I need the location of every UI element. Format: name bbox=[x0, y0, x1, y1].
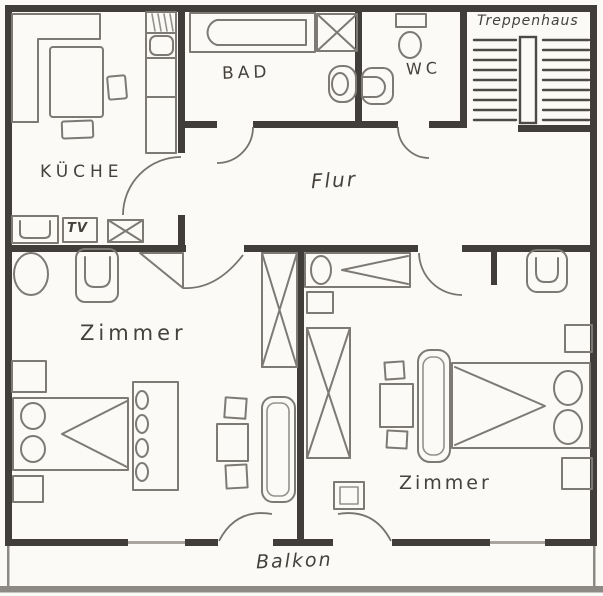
wall-shelf bbox=[565, 325, 592, 352]
washbasin-bathroom bbox=[329, 66, 356, 102]
stairwell-stairs bbox=[474, 37, 589, 123]
knob bbox=[136, 415, 148, 433]
corner-bench bbox=[12, 14, 100, 122]
balcony-door-left-arc bbox=[219, 513, 272, 541]
blanket-fold bbox=[342, 256, 408, 284]
wc-door-arc bbox=[398, 127, 429, 158]
chair bbox=[225, 464, 247, 488]
chair bbox=[387, 430, 408, 448]
stair-flight-right bbox=[543, 40, 589, 120]
sofa bbox=[262, 397, 295, 502]
floor-plan: KÜCHE BAD WC Treppenhaus Flur Zimmer Zim… bbox=[0, 0, 603, 596]
double-bed bbox=[452, 363, 590, 448]
bedroom-right-label: Zimmer bbox=[399, 472, 492, 494]
dining-table bbox=[50, 47, 103, 117]
chair bbox=[384, 361, 404, 379]
bedroom-left-furniture bbox=[12, 249, 297, 502]
bedroom-left-door-arc bbox=[183, 255, 243, 288]
pillow bbox=[554, 410, 582, 444]
sideboard bbox=[12, 216, 58, 243]
walls bbox=[5, 5, 597, 546]
cabinet bbox=[307, 292, 333, 313]
hallway-label: Flur bbox=[310, 167, 357, 193]
chair bbox=[62, 120, 94, 138]
knob bbox=[136, 463, 148, 481]
knob bbox=[136, 439, 148, 457]
nightstand bbox=[13, 476, 43, 502]
kitchen-label: KÜCHE bbox=[40, 162, 124, 182]
toilet-tank bbox=[396, 14, 426, 27]
x-cabinet bbox=[307, 328, 350, 458]
armchair bbox=[76, 249, 118, 302]
stair-landing bbox=[520, 37, 536, 123]
drainer-hatch bbox=[152, 14, 173, 31]
chair bbox=[224, 397, 246, 418]
wc-label: WC bbox=[406, 58, 442, 78]
round-chair bbox=[14, 253, 48, 295]
blanket-fold bbox=[455, 367, 545, 445]
sofa bbox=[418, 350, 450, 462]
table bbox=[380, 384, 413, 427]
blanket-fold bbox=[62, 401, 127, 467]
pillow bbox=[21, 403, 45, 429]
stair-flight-left bbox=[474, 40, 516, 120]
stairwell-label: Treppenhaus bbox=[477, 13, 579, 29]
washbasin-wc bbox=[362, 68, 393, 104]
small-cabinet bbox=[334, 482, 364, 509]
pillow bbox=[554, 371, 582, 405]
nightstand bbox=[12, 361, 46, 392]
crate bbox=[108, 220, 143, 242]
balcony-label: Balkon bbox=[256, 549, 333, 574]
tv-label: TV bbox=[67, 221, 88, 236]
bedroom-left-label: Zimmer bbox=[80, 321, 187, 345]
wardrobe bbox=[133, 382, 178, 490]
nightstand bbox=[562, 458, 592, 489]
bathroom-label: BAD bbox=[222, 62, 271, 84]
bathtub bbox=[190, 13, 315, 52]
x-cabinet bbox=[262, 253, 297, 367]
shower bbox=[317, 14, 357, 51]
kitchen-door-arc bbox=[123, 157, 181, 215]
bedroom-right-furniture bbox=[305, 250, 592, 509]
bathroom-fixtures bbox=[190, 13, 357, 102]
sink bbox=[150, 36, 173, 55]
toilet-bowl bbox=[399, 32, 421, 58]
kitchen-unit bbox=[146, 12, 176, 153]
door-leaf bbox=[140, 253, 183, 288]
table bbox=[217, 424, 248, 461]
daybed bbox=[305, 253, 410, 287]
pillow bbox=[21, 436, 45, 462]
chair bbox=[107, 75, 127, 99]
knob bbox=[136, 391, 148, 409]
armchair bbox=[527, 250, 567, 292]
bedroom-right-door-arc bbox=[419, 253, 462, 295]
pillow bbox=[311, 256, 331, 284]
double-bed bbox=[13, 398, 128, 470]
kitchen-furniture bbox=[12, 12, 176, 243]
balcony-door-right-arc bbox=[338, 513, 391, 541]
floor-plan-drawing bbox=[0, 0, 603, 596]
bathroom-door-arc bbox=[217, 127, 253, 163]
